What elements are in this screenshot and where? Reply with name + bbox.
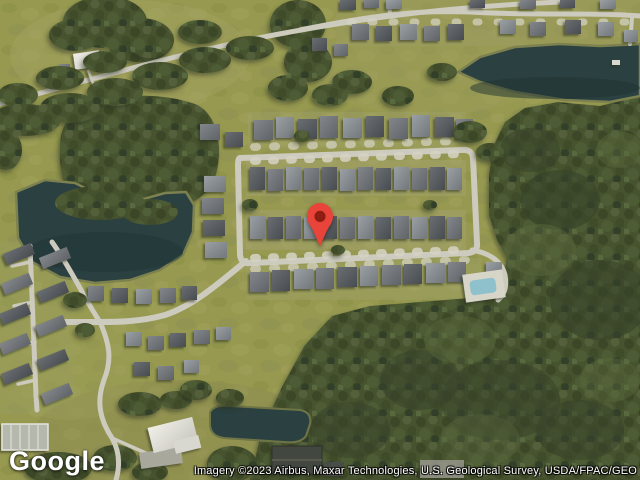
google-logo[interactable]: Google: [9, 446, 105, 477]
pin-dot: [314, 211, 325, 222]
pond-bottom: [210, 406, 310, 443]
map-attribution: Imagery ©2023 Airbus, Maxar Technologies…: [194, 465, 637, 477]
map-view: Google Imagery ©2023 Airbus, Maxar Techn…: [0, 0, 640, 480]
pin-body[interactable]: [307, 203, 333, 247]
map-marker[interactable]: [306, 202, 334, 248]
